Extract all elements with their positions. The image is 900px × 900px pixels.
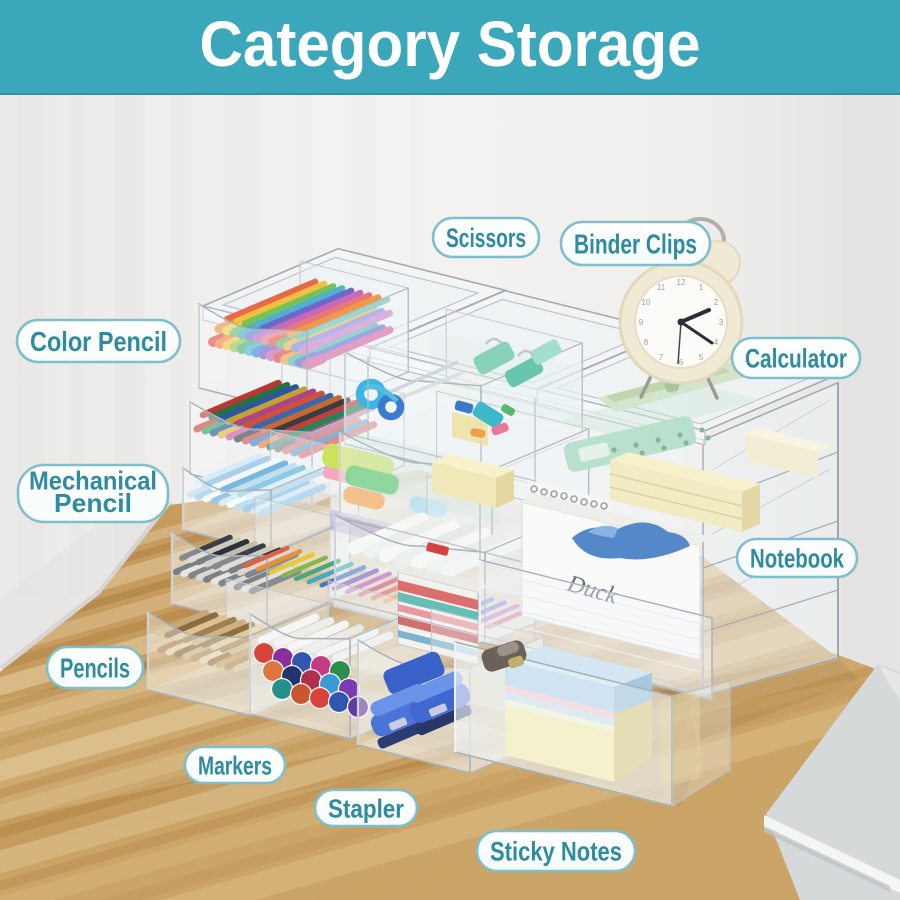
svg-text:Sticky Notes: Sticky Notes <box>490 837 622 867</box>
svg-text:Category Storage: Category Storage <box>200 8 701 80</box>
svg-text:12: 12 <box>677 278 686 287</box>
svg-text:6: 6 <box>679 358 684 367</box>
svg-text:Stapler: Stapler <box>328 793 404 823</box>
svg-text:2: 2 <box>714 298 719 307</box>
svg-text:11: 11 <box>657 283 666 292</box>
svg-text:4: 4 <box>714 338 719 347</box>
svg-text:Binder Clips: Binder Clips <box>574 229 697 260</box>
svg-text:Notebook: Notebook <box>750 544 845 574</box>
svg-text:Markers: Markers <box>198 750 272 780</box>
svg-text:7: 7 <box>659 353 664 362</box>
svg-text:9: 9 <box>639 318 644 327</box>
svg-text:Color Pencil: Color Pencil <box>30 326 167 357</box>
svg-text:10: 10 <box>642 298 651 307</box>
svg-text:Scissors: Scissors <box>446 223 526 253</box>
svg-text:Pencils: Pencils <box>60 653 130 684</box>
svg-text:Calculator: Calculator <box>745 344 847 374</box>
svg-text:Pencil: Pencil <box>54 488 132 518</box>
svg-text:3: 3 <box>719 318 724 327</box>
svg-text:8: 8 <box>644 338 649 347</box>
svg-text:5: 5 <box>699 353 704 362</box>
svg-text:1: 1 <box>699 283 704 292</box>
